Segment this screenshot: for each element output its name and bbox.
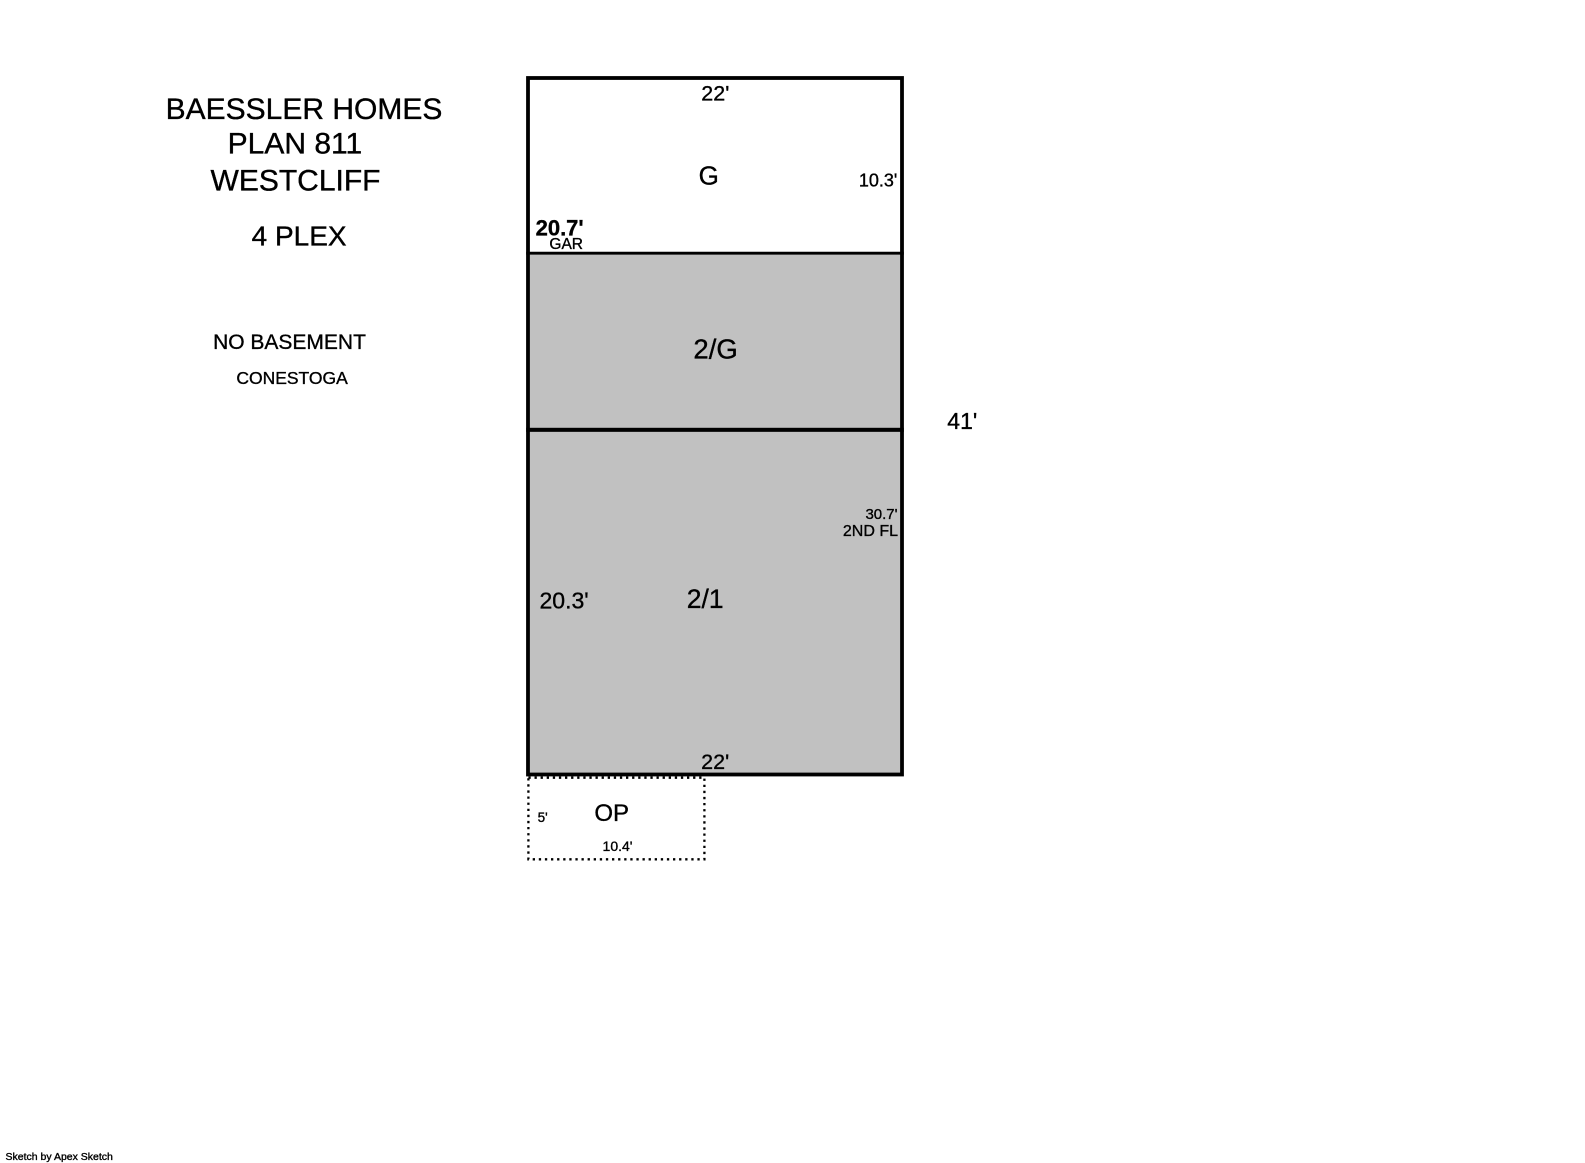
svg-text:2/G: 2/G bbox=[693, 333, 737, 364]
svg-text:4 PLEX: 4 PLEX bbox=[252, 220, 347, 251]
svg-text:10.4': 10.4' bbox=[603, 838, 633, 854]
svg-text:2/1: 2/1 bbox=[687, 584, 724, 614]
svg-text:G: G bbox=[699, 161, 719, 191]
svg-text:22': 22' bbox=[701, 750, 729, 774]
svg-text:BAESSLER HOMES: BAESSLER HOMES bbox=[166, 93, 443, 126]
svg-text:Sketch by Apex Sketch: Sketch by Apex Sketch bbox=[6, 1151, 114, 1163]
svg-text:CONESTOGA: CONESTOGA bbox=[236, 368, 348, 388]
svg-text:WESTCLIFF: WESTCLIFF bbox=[211, 165, 381, 198]
svg-text:5': 5' bbox=[538, 810, 548, 825]
svg-text:NO BASEMENT: NO BASEMENT bbox=[213, 331, 366, 354]
svg-text:GAR: GAR bbox=[549, 236, 583, 253]
svg-text:41': 41' bbox=[947, 408, 977, 434]
svg-text:20.3': 20.3' bbox=[540, 588, 589, 614]
svg-text:OP: OP bbox=[594, 800, 629, 827]
svg-text:22': 22' bbox=[701, 81, 729, 105]
svg-text:10.3': 10.3' bbox=[859, 171, 897, 191]
svg-text:PLAN 811: PLAN 811 bbox=[228, 128, 363, 161]
svg-text:2ND FL: 2ND FL bbox=[843, 523, 898, 540]
svg-text:30.7': 30.7' bbox=[865, 506, 897, 523]
